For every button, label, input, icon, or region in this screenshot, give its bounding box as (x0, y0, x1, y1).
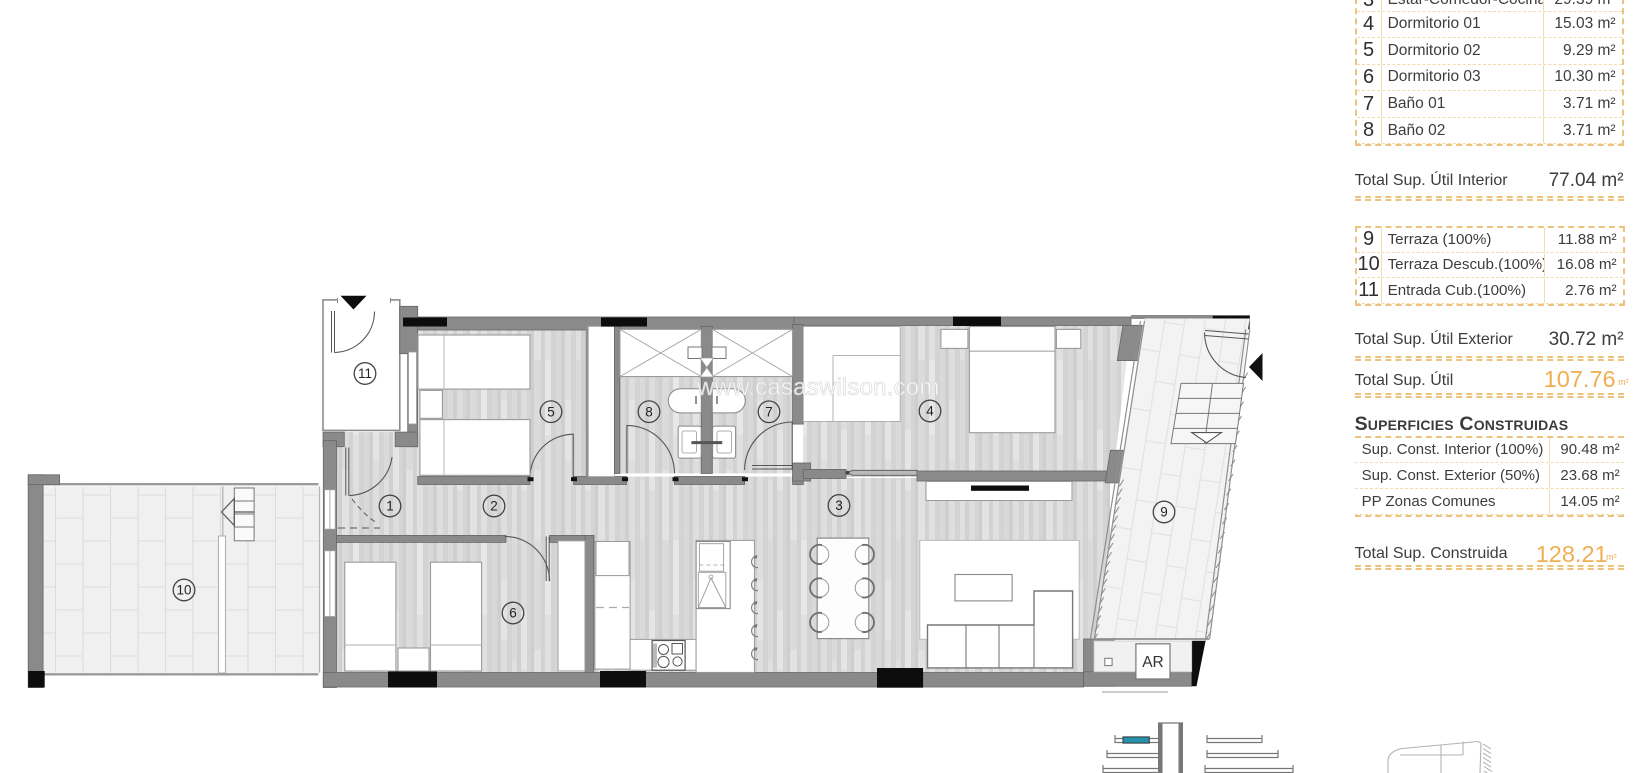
svg-text:7: 7 (765, 404, 773, 419)
svg-text:6: 6 (509, 606, 517, 621)
svg-text:1: 1 (386, 499, 394, 514)
svg-text:9: 9 (1160, 505, 1168, 520)
svg-text:2: 2 (490, 499, 498, 514)
svg-text:3: 3 (835, 498, 843, 513)
svg-text:www.casaswilson.com: www.casaswilson.com (696, 374, 940, 401)
svg-text:AR: AR (1142, 654, 1164, 671)
svg-text:5: 5 (547, 404, 555, 419)
svg-text:10: 10 (176, 583, 191, 598)
svg-text:8: 8 (645, 404, 653, 419)
svg-text:11: 11 (358, 366, 372, 381)
svg-text:4: 4 (926, 404, 934, 419)
